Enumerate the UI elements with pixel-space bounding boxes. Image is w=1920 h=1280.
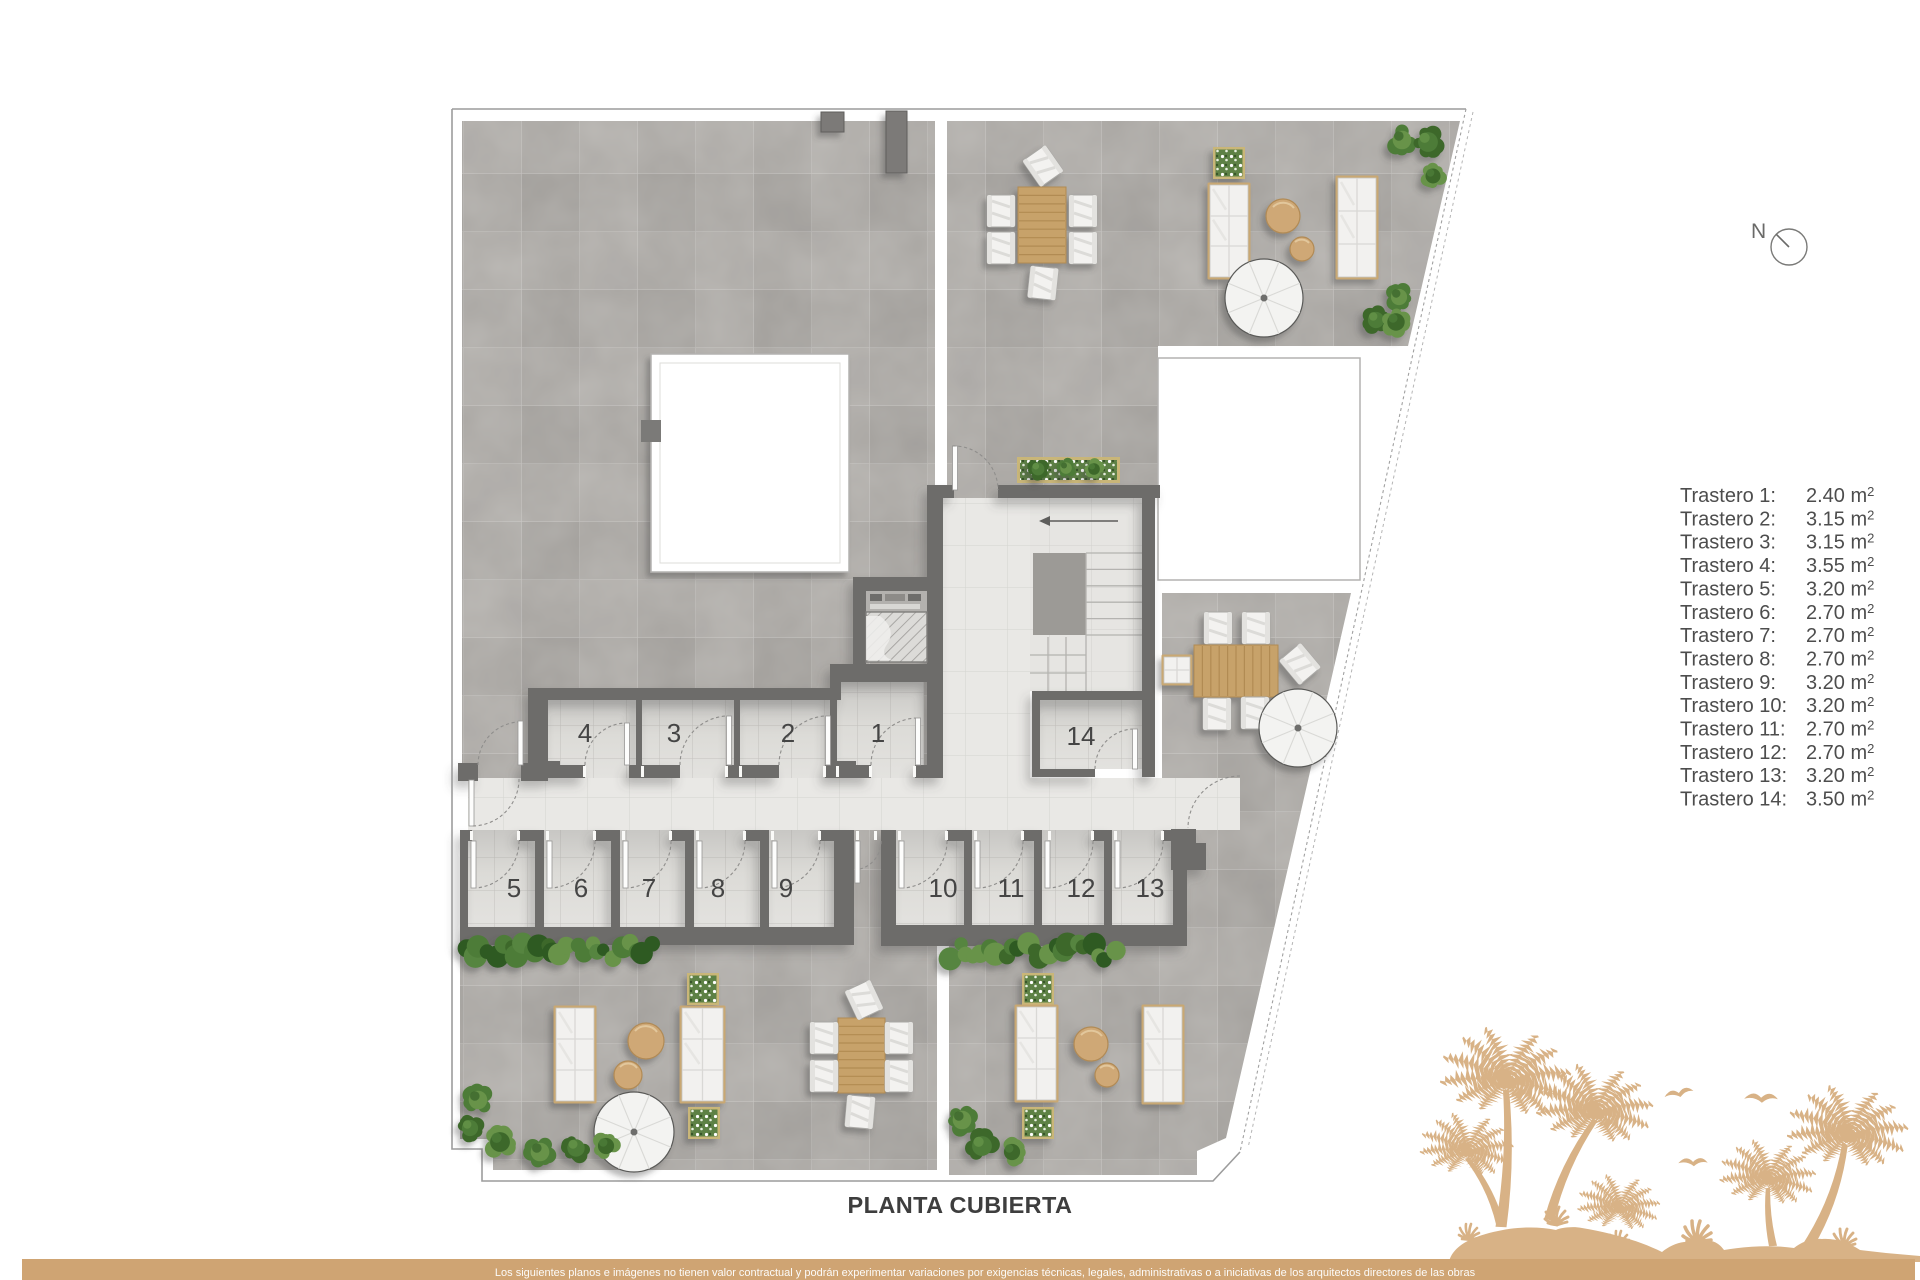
svg-text:7: 7: [642, 873, 656, 903]
svg-text:Trastero 12:: Trastero 12:: [1680, 742, 1787, 764]
svg-text:Trastero 5:: Trastero 5:: [1680, 578, 1776, 600]
svg-text:4: 4: [578, 718, 592, 748]
svg-text:3.20 m2: 3.20 m2: [1806, 671, 1874, 694]
svg-text:3.20 m2: 3.20 m2: [1806, 694, 1874, 717]
svg-text:3.15 m2: 3.15 m2: [1806, 531, 1874, 554]
svg-text:3.20 m2: 3.20 m2: [1806, 764, 1874, 787]
svg-text:1: 1: [871, 718, 885, 748]
svg-text:PLANTA CUBIERTA: PLANTA CUBIERTA: [848, 1192, 1073, 1218]
svg-text:3: 3: [667, 718, 681, 748]
svg-text:2.70 m2: 2.70 m2: [1806, 601, 1874, 624]
svg-text:N: N: [1751, 220, 1766, 243]
svg-text:13: 13: [1136, 873, 1165, 903]
svg-text:3.20 m2: 3.20 m2: [1806, 577, 1874, 600]
svg-text:Trastero 11:: Trastero 11:: [1680, 719, 1786, 741]
svg-text:Trastero 2:: Trastero 2:: [1680, 508, 1776, 530]
svg-text:Trastero 14:: Trastero 14:: [1680, 789, 1787, 811]
svg-text:3.55 m2: 3.55 m2: [1806, 554, 1874, 577]
svg-text:3.50 m2: 3.50 m2: [1806, 788, 1874, 811]
svg-text:Trastero 13:: Trastero 13:: [1680, 765, 1787, 787]
svg-text:6: 6: [574, 873, 588, 903]
svg-text:2.70 m2: 2.70 m2: [1806, 718, 1874, 741]
svg-text:2.70 m2: 2.70 m2: [1806, 741, 1874, 764]
svg-text:2.40 m2: 2.40 m2: [1806, 484, 1874, 507]
svg-text:Trastero 6:: Trastero 6:: [1680, 602, 1776, 624]
svg-text:11: 11: [998, 873, 1025, 903]
svg-text:9: 9: [779, 873, 793, 903]
svg-text:2.70 m2: 2.70 m2: [1806, 624, 1874, 647]
svg-text:Trastero 3:: Trastero 3:: [1680, 532, 1776, 554]
svg-text:12: 12: [1067, 873, 1096, 903]
svg-text:Trastero 8:: Trastero 8:: [1680, 649, 1776, 671]
svg-text:2.70 m2: 2.70 m2: [1806, 648, 1874, 671]
svg-text:Trastero 7:: Trastero 7:: [1680, 625, 1776, 647]
svg-text:Trastero 10:: Trastero 10:: [1680, 695, 1787, 717]
svg-text:Trastero 9:: Trastero 9:: [1680, 672, 1776, 694]
svg-text:Trastero 4:: Trastero 4:: [1680, 555, 1776, 577]
svg-text:14: 14: [1067, 721, 1096, 751]
svg-text:2: 2: [781, 718, 795, 748]
svg-text:Los siguientes planos e imágen: Los siguientes planos e imágenes no tien…: [495, 1267, 1476, 1279]
svg-text:Trastero 1:: Trastero 1:: [1680, 485, 1776, 507]
svg-text:8: 8: [711, 873, 725, 903]
svg-text:3.15 m2: 3.15 m2: [1806, 507, 1874, 530]
svg-text:5: 5: [507, 873, 521, 903]
svg-text:10: 10: [929, 873, 958, 903]
